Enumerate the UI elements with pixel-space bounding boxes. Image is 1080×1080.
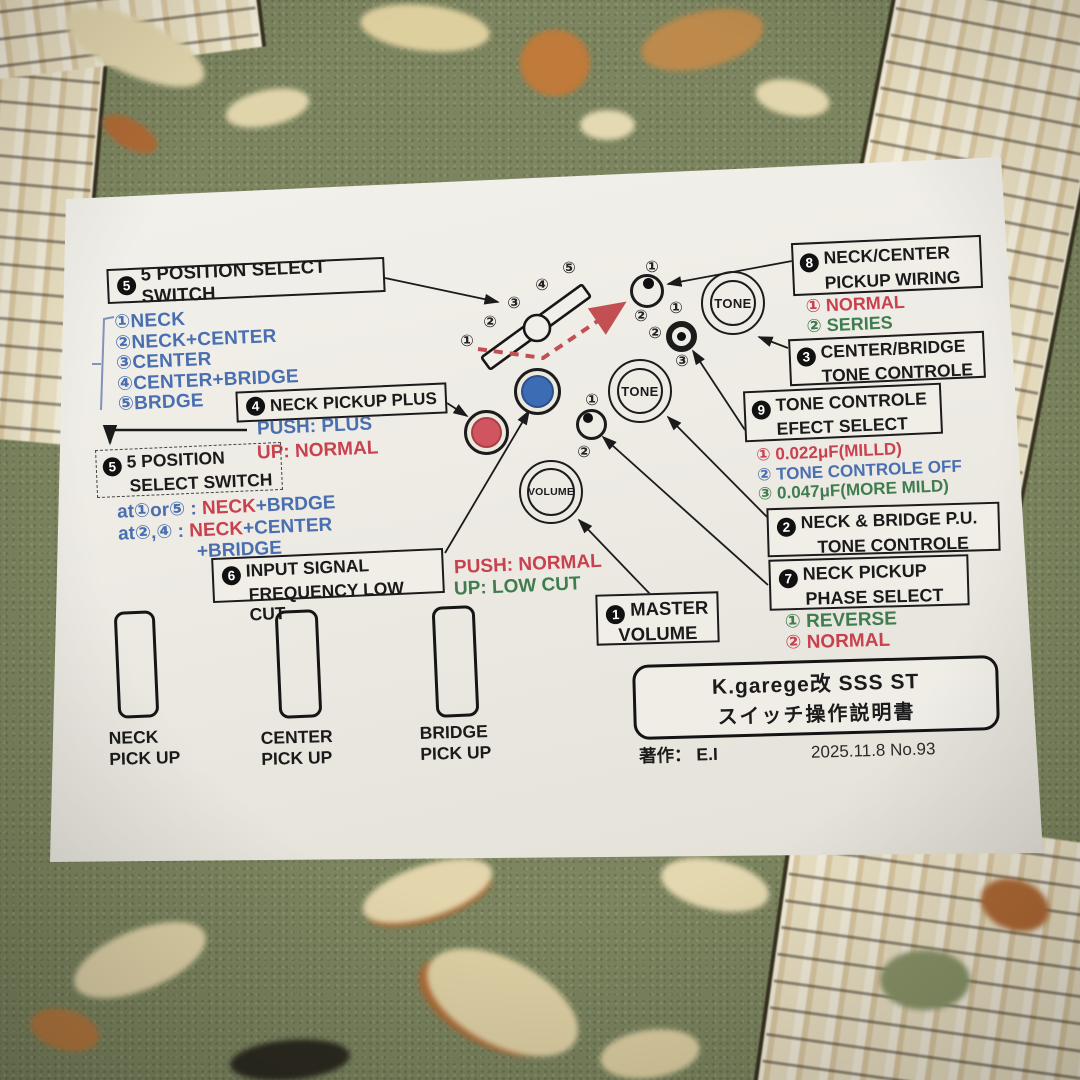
box2-line1: NECK & BRIDGE P.U. [800, 507, 977, 532]
at1-prefix: at①or⑤ : [117, 498, 203, 523]
box8-opt-series: ② SERIES [806, 312, 906, 336]
title-box: K.garege改 SSS ST スイッチ操作説明書 [632, 655, 1000, 740]
box-neck-pickup-phase: 7NECK PICKUP PHASE SELECT [768, 554, 969, 611]
knobA-wiring-switch [630, 274, 664, 308]
author-credit: 著作： E.I [639, 741, 718, 768]
neck-pickup-outline [114, 610, 160, 719]
badge-6: 6 [222, 566, 242, 586]
at2-red: NECK [189, 518, 244, 541]
photo-of-instruction-sheet: 5 5 POSITION SELECT SWITCH ①NECK ②NECK+C… [0, 0, 1080, 1080]
box-neck-bridge-tone: 2NECK & BRIDGE P.U. TONE CONTROLE [766, 502, 1000, 557]
neck-pickup-label: NECK PICK UP [108, 726, 180, 769]
box1-line2: VOLUME [598, 621, 718, 645]
box6-up-note: UP: LOW CUT [454, 573, 581, 601]
knobA-marker-1: ① [645, 257, 659, 277]
tone-knob-top: TONE [701, 271, 765, 335]
blue-button-cap [521, 375, 554, 408]
center-pickup-label: CENTER PICK UP [260, 726, 333, 769]
box-tone-effect-select: 9TONE CONTROLE EFECT SELECT [743, 383, 943, 443]
date-number: 2025.11.8 No.93 [811, 739, 936, 762]
knobB-marker-3: ③ [675, 351, 689, 371]
box-input-signal-low-cut: 6INPUT SIGNAL FREQUENCY LOW CUT [211, 548, 445, 603]
switch-marker-2: ② [483, 312, 497, 332]
knobC-marker-1: ① [585, 390, 599, 410]
knobC-phase-switch [576, 409, 607, 440]
box-5-position-select-switch: 5 5 POSITION SELECT SWITCH [106, 257, 385, 304]
box9-line1: TONE CONTROLE [775, 388, 927, 415]
box7-line1: NECK PICKUP [802, 560, 927, 583]
knobB-effect-select [666, 321, 697, 352]
at1-red: NECK [202, 496, 257, 519]
switch-marker-4: ④ [535, 275, 549, 295]
neck-pickup-line1: NECK [108, 726, 180, 748]
tone-knob-middle-label: TONE [621, 384, 658, 399]
volume-knob: VOLUME [519, 460, 583, 524]
bridge-pickup-line2: PICK UP [420, 742, 492, 764]
switch-marker-5: ⑤ [562, 258, 576, 278]
bridge-pickup-label: BRIDGE PICK UP [419, 721, 491, 764]
box1-line1: MASTER [630, 597, 709, 620]
knobB-marker-2: ② [648, 323, 662, 343]
badge-1: 1 [606, 605, 626, 625]
badge-8: 8 [799, 253, 819, 273]
badge-3: 3 [796, 347, 816, 367]
box4-push-note: PUSH: PLUS [257, 414, 373, 441]
box7-opt-normal: ② NORMAL [785, 629, 898, 653]
box8-options: ① NORMAL ② SERIES [805, 292, 906, 336]
box-center-bridge-tone: 3CENTER/BRIDGE TONE CONTROLE [788, 331, 986, 387]
box6-line1: INPUT SIGNAL [245, 555, 369, 580]
center-pickup-line2: PICK UP [261, 746, 333, 769]
center-pickup-line1: CENTER [260, 726, 332, 749]
knobC-pointer-dot [583, 413, 593, 423]
box9-options: ① 0.022μF(MILLD) ② TONE CONTROLE OFF ③ 0… [756, 437, 963, 504]
red-push-button [464, 410, 509, 455]
box5dash-line1: 5 POSITION [126, 447, 225, 471]
neck-pickup-line2: PICK UP [109, 747, 181, 769]
at2-prefix: at②,④ : [118, 520, 190, 544]
switch-marker-1: ① [460, 331, 474, 351]
switch-marker-3: ③ [507, 293, 521, 313]
title-line2: スイッチ操作説明書 [717, 695, 916, 730]
badge-9: 9 [751, 400, 771, 420]
tone-knob-middle: TONE [608, 359, 672, 423]
volume-knob-label: VOLUME [528, 486, 574, 498]
badge-4: 4 [246, 396, 266, 416]
knobC-marker-2: ② [577, 442, 591, 462]
box7-options: ① REVERSE ② NORMAL [784, 608, 897, 653]
bridge-pickup-outline [432, 605, 480, 718]
tone-knob-top-label: TONE [714, 296, 751, 311]
box8-line1: NECK/CENTER [823, 242, 950, 267]
badge-5-dashed: 5 [102, 457, 122, 477]
blue-push-button [514, 368, 561, 415]
center-pickup-outline [275, 609, 323, 719]
badge-7: 7 [779, 569, 799, 589]
box3-line1: CENTER/BRIDGE [820, 336, 966, 362]
knobA-marker-2: ② [634, 306, 648, 326]
box-master-volume: 1MASTER VOLUME [595, 591, 719, 645]
at1-blue: +BRDGE [255, 492, 336, 516]
bridge-pickup-line1: BRIDGE [419, 721, 491, 743]
box-neck-center-pickup-wiring: 8NECK/CENTER PICKUP WIRING [791, 235, 983, 296]
badge-2: 2 [777, 517, 797, 537]
box5-label: 5 POSITION SELECT SWITCH [140, 253, 384, 308]
box7-line2: PHASE SELECT [779, 583, 968, 610]
red-button-cap [471, 417, 502, 448]
knobB-center-dot [677, 332, 686, 341]
knobA-pointer-dot [643, 278, 654, 289]
badge-5: 5 [117, 276, 137, 296]
box4-label: NECK PICKUP PLUS [270, 388, 438, 415]
box6-line2: FREQUENCY LOW CUT [222, 576, 444, 626]
box-5-position-dashed: 55 POSITION SELECT SWITCH [95, 442, 283, 498]
knobB-marker-1: ① [669, 298, 683, 318]
at2-blue: +CENTER [243, 514, 333, 539]
